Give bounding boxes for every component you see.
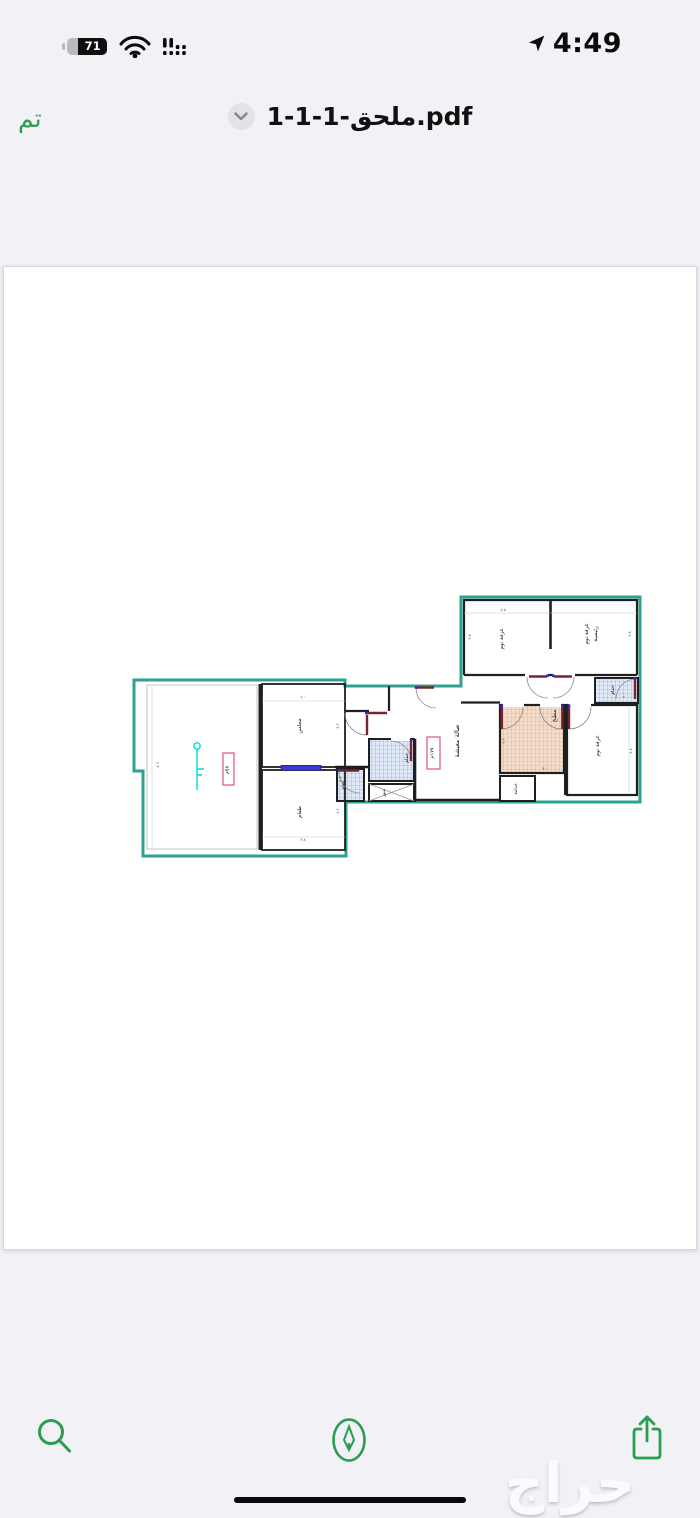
dim-master-right: ٣.٨ xyxy=(627,631,632,636)
room-label-master-bedroom-1: غرفة نوم xyxy=(584,623,590,644)
status-right-cluster: 4:49 xyxy=(527,28,622,59)
home-indicator[interactable] xyxy=(234,1497,466,1503)
door-gap xyxy=(503,703,524,707)
dim-kitchen-left: ٣.٣ xyxy=(501,738,506,743)
floor-plan: ٥٨م ١٧٧م xyxy=(131,589,653,881)
cellular-signal-icon xyxy=(163,37,193,56)
room-label-lightwell: منور xyxy=(382,788,387,798)
dim-dining-right: ٤.٢ xyxy=(335,808,340,813)
status-left-cluster: 71 xyxy=(62,34,193,58)
wifi-icon xyxy=(119,34,151,58)
dim-majlis-top: ٤.٠ xyxy=(300,694,305,699)
room-label-living-hall: صالة معيشة xyxy=(453,724,461,757)
markup-button[interactable] xyxy=(330,1415,368,1468)
battery-icon: 71 xyxy=(67,38,107,55)
clock-time: 4:49 xyxy=(553,28,622,59)
document-title: 1-1-1-ملحق.pdf xyxy=(267,102,473,131)
pdf-page[interactable]: ٥٨م ١٧٧م xyxy=(3,266,697,1250)
dim-bath-right: ٢.٠ xyxy=(621,692,626,697)
room-label-dining: طعام xyxy=(297,806,303,818)
room-label-bedroom-top: غرفة نوم xyxy=(499,628,505,649)
area-label-hall: ١٧٧م xyxy=(430,747,436,758)
nav-bar: تم 1-1-1-ملحق.pdf xyxy=(0,96,700,156)
door-gap xyxy=(391,737,410,741)
battery-nub xyxy=(62,43,65,50)
markup-pen-icon xyxy=(330,1415,368,1465)
title-area: 1-1-1-ملحق.pdf xyxy=(0,102,700,131)
chevron-down-icon xyxy=(234,112,248,121)
room-label-bathroom-middle: حمام xyxy=(405,753,410,763)
status-bar: 71 4:49 xyxy=(0,0,700,90)
dim-dining-bottom: ٣.٨ xyxy=(300,837,305,842)
bedroom-right-room xyxy=(567,705,637,795)
room-label-kitchen: مطبخ xyxy=(552,710,558,723)
location-arrow-icon xyxy=(527,34,546,53)
dim-bed1-left: ٣.٨ xyxy=(467,634,472,639)
battery-percent: 71 xyxy=(85,39,101,53)
area-label-left: ٥٨م xyxy=(225,765,231,774)
dim-bed2-right: ٤.٤ xyxy=(628,748,633,753)
search-icon xyxy=(36,1417,74,1457)
search-button[interactable] xyxy=(36,1417,74,1460)
door-gap xyxy=(540,703,561,707)
dim-kitchen-bottom: ٣.٠ xyxy=(542,766,547,771)
room-label-maid-room: خدامة xyxy=(514,783,519,794)
room-label-majlis: مجلس xyxy=(297,718,303,733)
door-gap xyxy=(569,703,591,707)
room-label-bathroom-right: حمام xyxy=(611,685,616,695)
dim-left-room-side: ٨.٦ xyxy=(155,762,160,767)
window-bar xyxy=(281,765,321,770)
watermark: حراج xyxy=(505,1452,635,1515)
title-menu-button[interactable] xyxy=(228,103,255,130)
room-label-bedroom-right: غرفة نوم xyxy=(595,735,601,756)
room-label-master-bedroom-2: رئيسية xyxy=(593,626,599,642)
dim-majlis-right: ٤.٢ xyxy=(335,723,340,728)
dim-bed1-top: ٤.٥ xyxy=(500,607,505,612)
dim-bath-small: ١.٣ xyxy=(338,776,343,781)
bathroom-right xyxy=(595,678,638,703)
